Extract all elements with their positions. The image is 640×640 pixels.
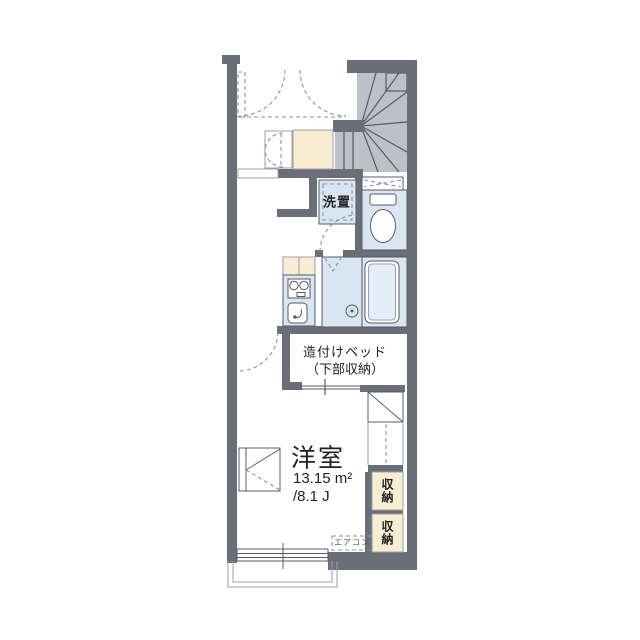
laundry-label: 洗置	[323, 196, 351, 209]
stove-icon	[288, 279, 310, 298]
floorplan-canvas: 洗置 造付けベッド （下部収納） 洋室 13.15 m² /8.1 J 収納 収…	[0, 0, 640, 640]
sink-icon	[288, 303, 307, 323]
storage-lower-label: 収納	[381, 520, 393, 546]
window	[237, 543, 328, 569]
bed-storage-label: （下部収納）	[306, 363, 384, 376]
toilet-icon	[370, 194, 396, 243]
bathtub-icon	[365, 261, 399, 323]
washer-space	[319, 180, 357, 252]
under-stair-closet	[368, 392, 403, 465]
toilet-room	[362, 177, 407, 250]
overhead-shelf-icon	[362, 177, 403, 190]
storage-upper-label: 収納	[381, 478, 393, 504]
built-in-bed-label: 造付けベッド	[303, 346, 387, 359]
floorplan-drawing	[0, 0, 640, 640]
room-area-label: 13.15 m²	[293, 471, 352, 486]
entry-door-swing	[238, 70, 346, 117]
room-tatami-label: /8.1 J	[293, 489, 330, 504]
aircon-label: エアコン	[334, 539, 370, 547]
desk-counter	[239, 448, 280, 491]
built-in-bed-edge	[300, 379, 360, 395]
unit-bath	[322, 257, 407, 327]
room-door-swing	[240, 332, 278, 371]
room-name-label: 洋室	[291, 447, 345, 472]
kitchen	[283, 257, 315, 326]
hall-closet	[265, 131, 292, 168]
shoe-cabinet	[293, 130, 333, 169]
entry-step	[238, 169, 278, 178]
